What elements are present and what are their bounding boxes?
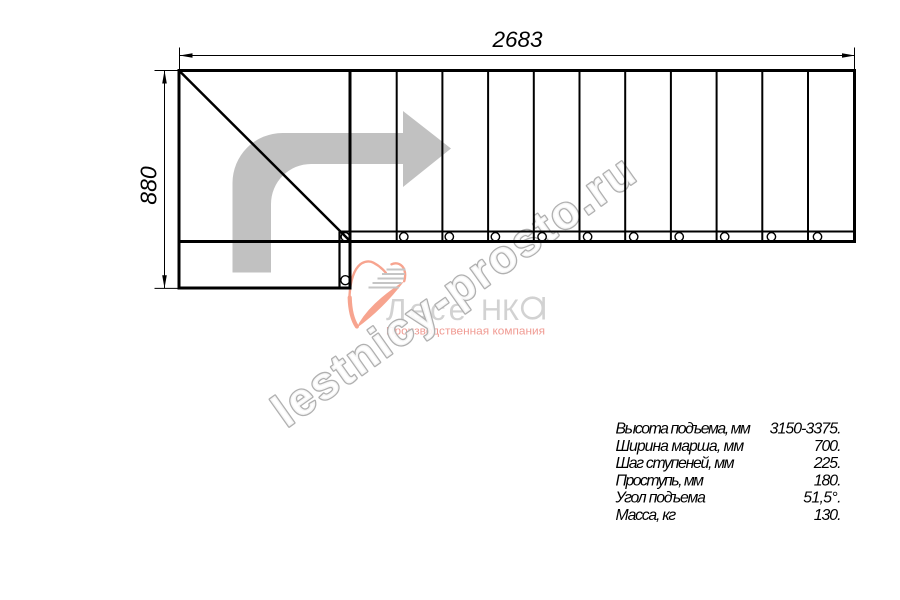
svg-text:Шаг ступеней, мм: Шаг ступеней, мм — [616, 455, 735, 472]
svg-text:Угол подъема: Угол подъема — [615, 490, 707, 507]
svg-text:130.: 130. — [814, 507, 842, 524]
svg-text:3150-3375.: 3150-3375. — [770, 421, 842, 438]
svg-text:51,5°.: 51,5°. — [803, 490, 841, 507]
svg-text:2683: 2683 — [491, 27, 543, 52]
svg-text:Ширина марша, мм: Ширина марша, мм — [616, 438, 745, 455]
svg-text:lestnicy-prosto.ru: lestnicy-prosto.ru — [262, 144, 646, 437]
svg-text:Высота подъема, мм: Высота подъема, мм — [616, 421, 752, 438]
svg-text:Масса, кг: Масса, кг — [616, 507, 677, 524]
svg-text:180.: 180. — [814, 472, 842, 489]
svg-text:700.: 700. — [814, 438, 842, 455]
svg-text:НК: НК — [481, 294, 520, 327]
svg-text:880: 880 — [136, 166, 162, 205]
svg-text:225.: 225. — [813, 455, 842, 472]
svg-text:Проступь, мм: Проступь, мм — [616, 472, 705, 489]
